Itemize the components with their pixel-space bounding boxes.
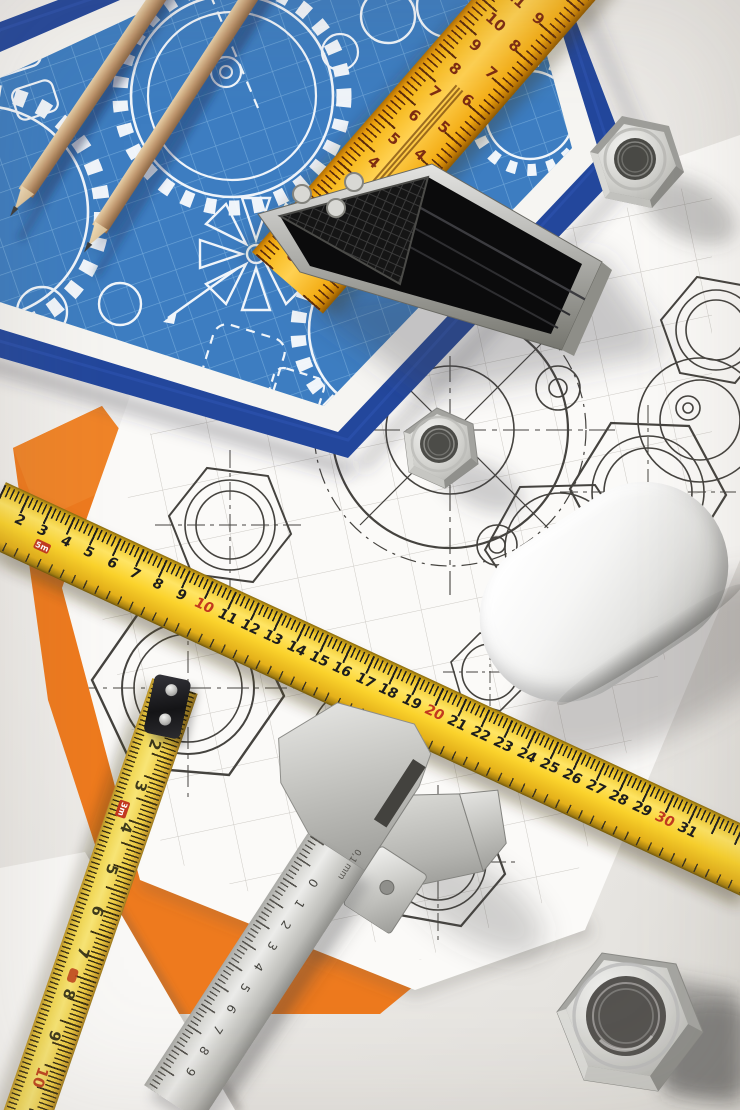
rivet-icon [293, 185, 311, 203]
scale-number: 9 [176, 1058, 206, 1085]
scale-number: 7 [203, 1016, 233, 1043]
rivet-icon [164, 683, 178, 697]
scale-number: 3 [258, 933, 288, 960]
caliper-ticks-major [147, 836, 324, 1096]
try-square[interactable] [250, 150, 615, 365]
rivet-icon [158, 712, 172, 726]
caliper-beam: 0,1 mm 0123456789 [144, 833, 364, 1110]
scale-number: 6 [217, 995, 247, 1022]
scale-number: 4 [244, 954, 274, 981]
scale-number: 0 [299, 870, 329, 897]
caliper-scale: 0123456789 [177, 868, 327, 1086]
scale-number: 1 [285, 891, 315, 918]
scale-number: 5 [230, 975, 260, 1002]
rivet-icon [345, 173, 363, 191]
scale-number: 8 [190, 1037, 220, 1064]
desk-surface: 2345678910111213141516171819202122232425… [0, 0, 740, 1110]
rule-hinge [143, 673, 192, 739]
rivet-icon [327, 199, 345, 217]
